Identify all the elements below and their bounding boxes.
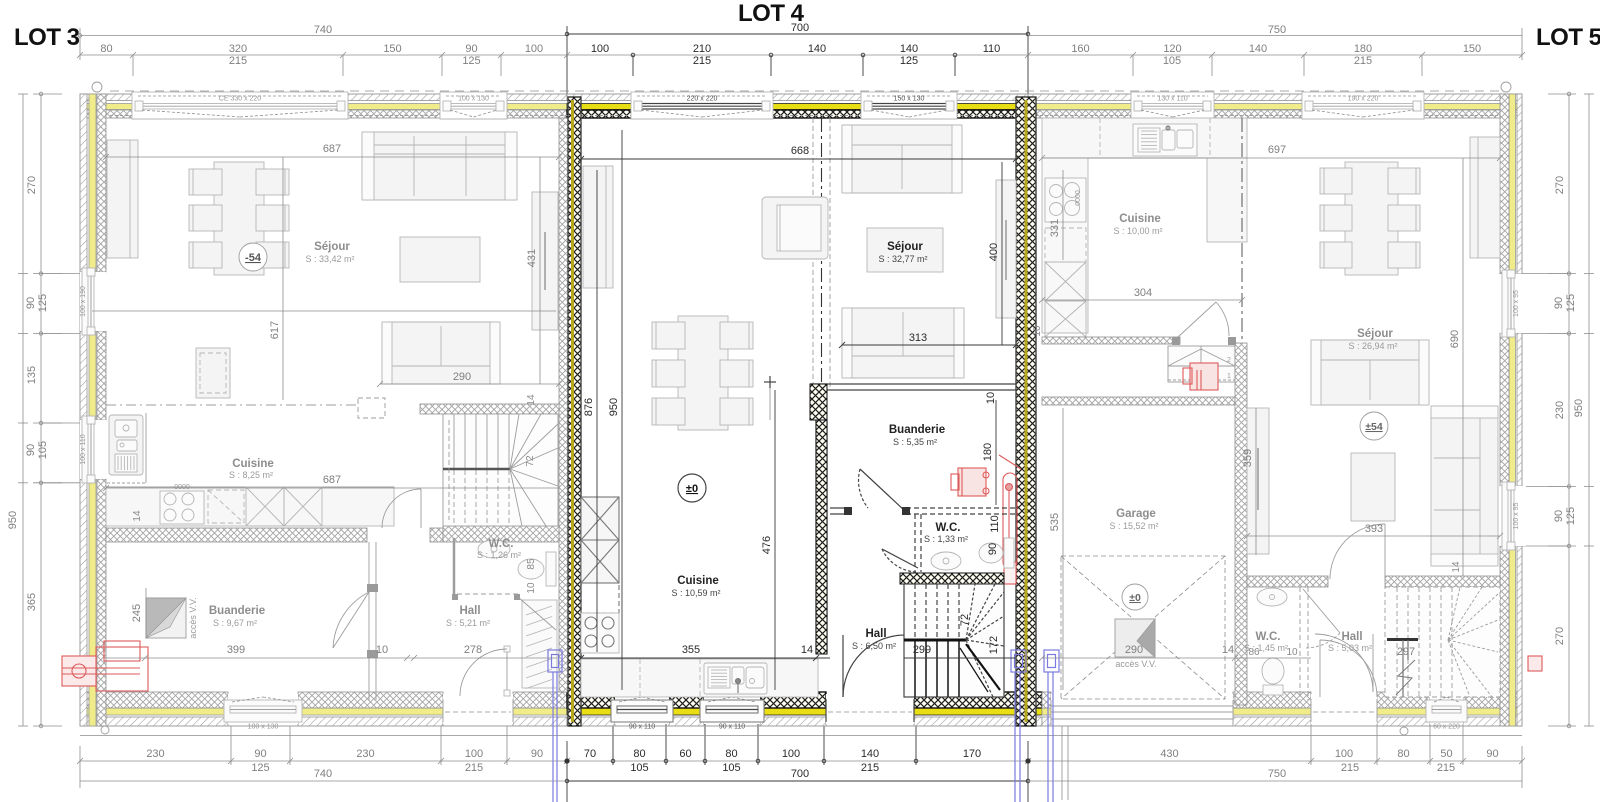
- svg-text:100: 100: [591, 43, 609, 55]
- svg-text:14: 14: [1222, 644, 1234, 656]
- svg-text:120: 120: [1163, 43, 1181, 55]
- svg-text:90: 90: [1553, 297, 1565, 309]
- svg-text:740: 740: [314, 768, 332, 780]
- svg-text:750: 750: [1268, 24, 1286, 36]
- svg-text:100: 100: [1335, 748, 1353, 760]
- svg-text:S : 5,03 m²: S : 5,03 m²: [1328, 643, 1372, 653]
- svg-text:60 x 220: 60 x 220: [1433, 724, 1460, 731]
- svg-text:accès V.V.: accès V.V.: [188, 597, 198, 638]
- svg-text:-54: -54: [245, 252, 262, 264]
- svg-text:Séjour: Séjour: [1357, 328, 1393, 340]
- svg-text:270: 270: [1554, 627, 1566, 645]
- svg-text:90 x 110: 90 x 110: [629, 724, 655, 731]
- svg-text:230: 230: [1554, 401, 1566, 419]
- svg-text:180: 180: [1354, 43, 1372, 55]
- svg-text:750: 750: [1268, 768, 1286, 780]
- svg-text:Buanderie: Buanderie: [209, 605, 265, 617]
- svg-text:125: 125: [251, 762, 269, 774]
- svg-text:215: 215: [1437, 762, 1455, 774]
- svg-text:S : 32,77 m²: S : 32,77 m²: [878, 254, 927, 264]
- svg-text:90: 90: [1553, 510, 1565, 522]
- svg-text:393: 393: [1365, 523, 1383, 535]
- svg-text:687: 687: [323, 143, 341, 155]
- svg-text:CE 330 x 220: CE 330 x 220: [219, 96, 262, 103]
- svg-text:190 x 220: 190 x 220: [1348, 96, 1379, 103]
- svg-text:S : 8,25 m²: S : 8,25 m²: [229, 470, 273, 480]
- svg-text:S : 10,00 m²: S : 10,00 m²: [1113, 226, 1162, 236]
- svg-text:90: 90: [254, 748, 266, 760]
- svg-text:687: 687: [323, 474, 341, 486]
- svg-text:S : 1,26 m²: S : 1,26 m²: [477, 550, 521, 560]
- svg-text:80: 80: [100, 43, 112, 55]
- svg-text:140: 140: [900, 43, 918, 55]
- svg-text:230: 230: [356, 748, 374, 760]
- svg-text:125: 125: [462, 55, 480, 67]
- svg-text:LOT 3: LOT 3: [14, 24, 80, 51]
- svg-text:365: 365: [26, 593, 38, 611]
- svg-text:180: 180: [982, 443, 994, 461]
- svg-text:72: 72: [525, 455, 536, 467]
- svg-text:LOT 5: LOT 5: [1536, 24, 1600, 51]
- svg-text:10: 10: [985, 392, 997, 404]
- svg-text:0000: 0000: [174, 484, 190, 491]
- svg-text:125: 125: [1565, 294, 1577, 312]
- svg-text:100 x 95: 100 x 95: [1513, 290, 1520, 317]
- svg-text:10: 10: [526, 582, 537, 594]
- svg-text:140: 140: [861, 748, 879, 760]
- svg-text:S : 26,94 m²: S : 26,94 m²: [1348, 341, 1397, 351]
- svg-text:0000: 0000: [1075, 190, 1082, 206]
- svg-text:697: 697: [1268, 144, 1286, 156]
- svg-text:290: 290: [1125, 644, 1143, 656]
- svg-text:S : 15,52 m²: S : 15,52 m²: [1109, 521, 1158, 531]
- svg-text:740: 740: [314, 24, 332, 36]
- svg-text:210: 210: [693, 43, 711, 55]
- svg-text:950: 950: [7, 511, 19, 529]
- svg-text:215: 215: [1341, 762, 1359, 774]
- svg-text:535: 535: [1049, 513, 1061, 531]
- svg-text:100: 100: [782, 748, 800, 760]
- svg-text:Séjour: Séjour: [887, 241, 923, 253]
- svg-text:290: 290: [453, 371, 471, 383]
- svg-text:14: 14: [132, 510, 143, 522]
- svg-text:90: 90: [25, 297, 37, 309]
- svg-text:Séjour: Séjour: [314, 241, 350, 253]
- svg-text:130 x 110: 130 x 110: [1157, 96, 1187, 103]
- svg-text:690: 690: [1449, 330, 1461, 348]
- svg-text:950: 950: [608, 398, 620, 416]
- svg-text:±54: ±54: [1365, 421, 1383, 433]
- svg-text:accès V.V.: accès V.V.: [1115, 659, 1156, 669]
- svg-text:100 x 130: 100 x 130: [248, 724, 279, 731]
- svg-text:S : 1,33 m²: S : 1,33 m²: [924, 534, 968, 544]
- svg-text:105: 105: [37, 441, 49, 459]
- svg-text:W.C.: W.C.: [936, 522, 961, 534]
- svg-text:150 x 130: 150 x 130: [894, 96, 925, 103]
- svg-text:355: 355: [682, 644, 700, 656]
- svg-text:10: 10: [1032, 325, 1043, 337]
- svg-text:320: 320: [229, 43, 247, 55]
- svg-text:S : 6,50 m²: S : 6,50 m²: [852, 641, 896, 651]
- svg-text:Hall: Hall: [1341, 631, 1362, 643]
- svg-text:72: 72: [959, 614, 971, 626]
- svg-text:100 x 130: 100 x 130: [458, 96, 489, 103]
- svg-text:80: 80: [1397, 748, 1409, 760]
- svg-text:700: 700: [791, 768, 809, 780]
- svg-text:876: 876: [583, 398, 595, 416]
- svg-text:105: 105: [630, 762, 648, 774]
- svg-text:125: 125: [1565, 507, 1577, 525]
- svg-text:220 x 220: 220 x 220: [687, 96, 718, 103]
- svg-text:270: 270: [1554, 176, 1566, 194]
- svg-text:90: 90: [531, 748, 543, 760]
- svg-text:215: 215: [693, 55, 711, 67]
- svg-text:Cuisine: Cuisine: [1119, 213, 1161, 225]
- svg-text:±0: ±0: [1129, 592, 1141, 604]
- svg-text:278: 278: [464, 644, 482, 656]
- svg-text:10: 10: [1286, 647, 1298, 658]
- svg-text:105: 105: [722, 762, 740, 774]
- svg-text:90: 90: [987, 543, 999, 555]
- svg-text:Buanderie: Buanderie: [889, 424, 945, 436]
- svg-text:476: 476: [761, 536, 773, 554]
- svg-text:270: 270: [26, 176, 38, 194]
- svg-text:400: 400: [988, 243, 1000, 261]
- svg-text:70: 70: [584, 748, 596, 760]
- svg-text:±0: ±0: [686, 483, 698, 495]
- svg-text:135: 135: [26, 366, 38, 384]
- svg-text:Hall: Hall: [459, 605, 480, 617]
- svg-text:170: 170: [963, 748, 981, 760]
- svg-text:86: 86: [1248, 647, 1260, 658]
- svg-text:150: 150: [1463, 43, 1481, 55]
- svg-text:90: 90: [25, 444, 37, 456]
- svg-text:230: 230: [146, 748, 164, 760]
- svg-text:215: 215: [1354, 55, 1372, 67]
- svg-text:140: 140: [808, 43, 826, 55]
- svg-text:431: 431: [526, 249, 538, 267]
- svg-text:2: 2: [1227, 357, 1231, 364]
- svg-text:Cuisine: Cuisine: [232, 458, 274, 470]
- svg-text:359: 359: [1242, 449, 1254, 467]
- svg-text:1: 1: [1227, 373, 1231, 380]
- svg-text:100: 100: [525, 43, 543, 55]
- svg-text:Hall: Hall: [865, 628, 886, 640]
- svg-text:313: 313: [909, 332, 927, 344]
- svg-text:10: 10: [376, 644, 388, 656]
- svg-text:14: 14: [801, 644, 813, 656]
- svg-text:S : 9,67 m²: S : 9,67 m²: [213, 618, 257, 628]
- svg-text:100 x 190: 100 x 190: [80, 286, 87, 317]
- svg-text:S : 10,59 m²: S : 10,59 m²: [671, 588, 720, 598]
- svg-text:160: 160: [1071, 43, 1089, 55]
- svg-text:125: 125: [37, 294, 49, 312]
- svg-text:80: 80: [725, 748, 737, 760]
- svg-text:Cuisine: Cuisine: [677, 575, 719, 587]
- svg-text:299: 299: [913, 644, 931, 656]
- svg-text:215: 215: [465, 762, 483, 774]
- svg-text:S : 33,42 m²: S : 33,42 m²: [305, 254, 354, 264]
- svg-text:110: 110: [989, 515, 1001, 533]
- svg-text:50: 50: [1440, 748, 1452, 760]
- svg-text:90: 90: [1486, 748, 1498, 760]
- svg-text:399: 399: [227, 644, 245, 656]
- svg-text:S : 5,35 m²: S : 5,35 m²: [893, 437, 937, 447]
- svg-text:304: 304: [1134, 287, 1152, 299]
- svg-text:297: 297: [1397, 646, 1415, 658]
- svg-text:100 x 110: 100 x 110: [80, 434, 87, 464]
- svg-text:80: 80: [633, 748, 645, 760]
- svg-text:172: 172: [988, 636, 1000, 654]
- svg-text:140: 140: [1249, 43, 1267, 55]
- svg-text:150: 150: [383, 43, 401, 55]
- svg-text:700: 700: [791, 22, 809, 34]
- svg-text:14: 14: [1451, 561, 1462, 573]
- svg-text:100: 100: [465, 748, 483, 760]
- svg-text:60: 60: [679, 748, 691, 760]
- svg-text:430: 430: [1160, 748, 1178, 760]
- svg-text:331: 331: [1049, 219, 1061, 237]
- svg-text:S : 5,21 m²: S : 5,21 m²: [446, 618, 490, 628]
- svg-text:90 x 110: 90 x 110: [719, 724, 745, 731]
- svg-text:85: 85: [526, 558, 537, 570]
- svg-text:105: 105: [1163, 55, 1181, 67]
- svg-text:950: 950: [1573, 399, 1585, 417]
- svg-text:Garage: Garage: [1116, 508, 1156, 520]
- svg-text:W.C.: W.C.: [489, 538, 514, 550]
- svg-text:90: 90: [465, 43, 477, 55]
- svg-text:W.C.: W.C.: [1256, 631, 1281, 643]
- svg-text:110: 110: [983, 43, 1001, 55]
- svg-text:215: 215: [229, 55, 247, 67]
- svg-text:668: 668: [791, 145, 809, 157]
- svg-text:215: 215: [861, 762, 879, 774]
- svg-text:245: 245: [131, 604, 143, 622]
- svg-text:125: 125: [900, 55, 918, 67]
- svg-text:100 x 95: 100 x 95: [1513, 502, 1520, 529]
- svg-text:14: 14: [526, 394, 537, 406]
- svg-text:617: 617: [269, 321, 281, 339]
